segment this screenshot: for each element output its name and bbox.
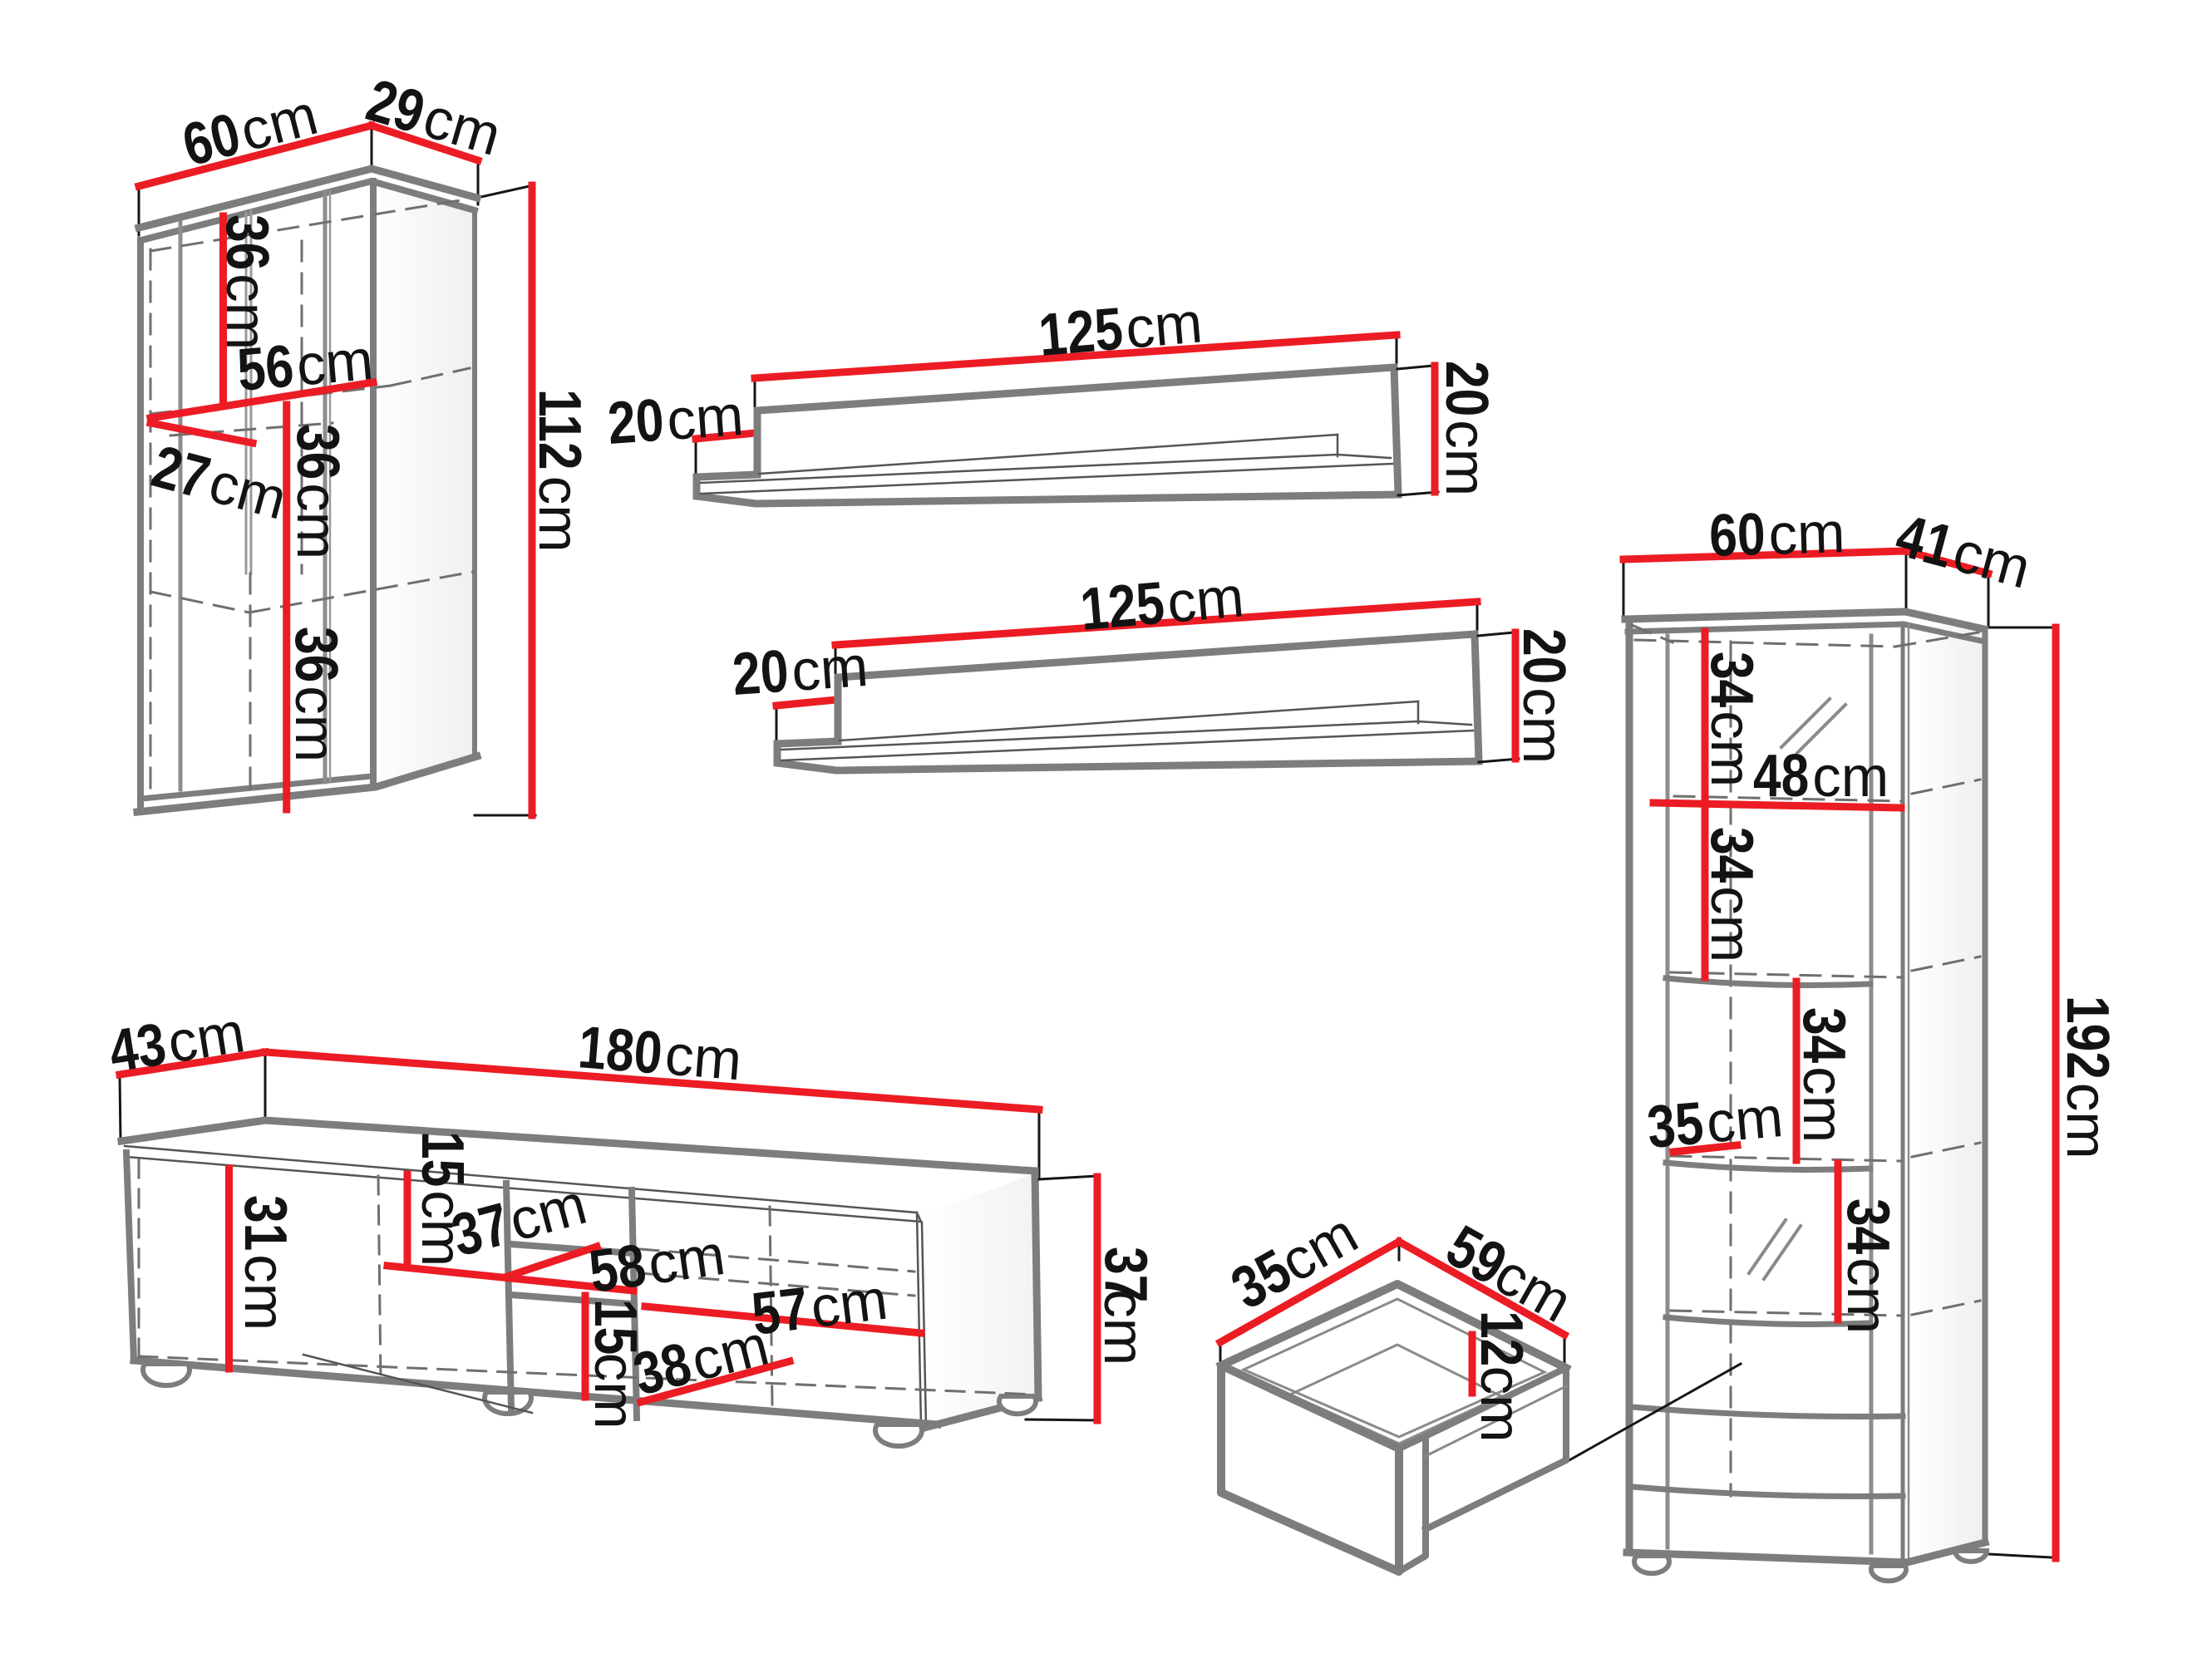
svg-text:cm: cm <box>790 634 870 703</box>
svg-text:cm: cm <box>234 82 323 164</box>
svg-text:36: 36 <box>283 627 349 682</box>
svg-text:cm: cm <box>1835 1257 1899 1334</box>
svg-text:125: 125 <box>1078 570 1167 643</box>
svg-text:20: 20 <box>1433 361 1500 416</box>
svg-text:cm: cm <box>1791 1066 1855 1143</box>
svg-text:cm: cm <box>644 1223 729 1296</box>
svg-text:cm: cm <box>416 85 508 168</box>
svg-text:cm: cm <box>164 1000 249 1075</box>
svg-text:cm: cm <box>285 483 349 559</box>
svg-text:cm: cm <box>2055 1083 2119 1159</box>
svg-text:cm: cm <box>1812 745 1889 809</box>
svg-text:cm: cm <box>233 1254 297 1331</box>
svg-text:cm: cm <box>685 1312 775 1393</box>
svg-text:34: 34 <box>1698 827 1765 883</box>
svg-text:56: 56 <box>234 332 296 404</box>
svg-text:36: 36 <box>284 424 351 480</box>
svg-text:cm: cm <box>1947 519 2037 601</box>
svg-text:180: 180 <box>576 1014 665 1087</box>
svg-text:cm: cm <box>1767 500 1845 567</box>
svg-text:cm: cm <box>1123 290 1205 361</box>
svg-text:31: 31 <box>232 1195 298 1251</box>
svg-text:cm: cm <box>1511 687 1575 764</box>
svg-text:112: 112 <box>526 389 593 470</box>
svg-text:cm: cm <box>1699 886 1763 962</box>
svg-text:cm: cm <box>527 476 591 553</box>
svg-text:35: 35 <box>1644 1090 1706 1161</box>
svg-text:cm: cm <box>1165 564 1246 635</box>
svg-text:cm: cm <box>203 450 293 532</box>
svg-text:15: 15 <box>409 1131 475 1187</box>
svg-text:34: 34 <box>1835 1198 1901 1254</box>
svg-text:192: 192 <box>2054 996 2121 1080</box>
svg-text:cm: cm <box>807 1267 891 1341</box>
svg-text:34: 34 <box>1698 652 1765 707</box>
svg-text:cm: cm <box>1469 1366 1533 1443</box>
svg-text:58: 58 <box>585 1232 650 1306</box>
svg-text:cm: cm <box>665 383 746 452</box>
svg-text:cm: cm <box>1704 1085 1786 1155</box>
svg-text:12: 12 <box>1468 1311 1535 1366</box>
svg-text:125: 125 <box>1037 296 1126 369</box>
svg-text:34: 34 <box>1791 1007 1857 1063</box>
svg-text:43: 43 <box>105 1011 170 1085</box>
svg-text:48: 48 <box>1753 743 1809 809</box>
svg-text:20: 20 <box>1510 628 1577 684</box>
svg-text:cm: cm <box>294 327 376 398</box>
svg-text:20: 20 <box>731 638 791 709</box>
svg-text:20: 20 <box>606 387 667 458</box>
svg-text:cm: cm <box>283 686 347 762</box>
svg-text:36: 36 <box>214 214 280 270</box>
svg-text:cm: cm <box>663 1022 744 1092</box>
svg-text:cm: cm <box>503 1172 594 1253</box>
svg-text:cm: cm <box>1434 420 1498 496</box>
svg-text:cm: cm <box>1092 1289 1156 1365</box>
svg-text:60: 60 <box>1708 501 1766 569</box>
